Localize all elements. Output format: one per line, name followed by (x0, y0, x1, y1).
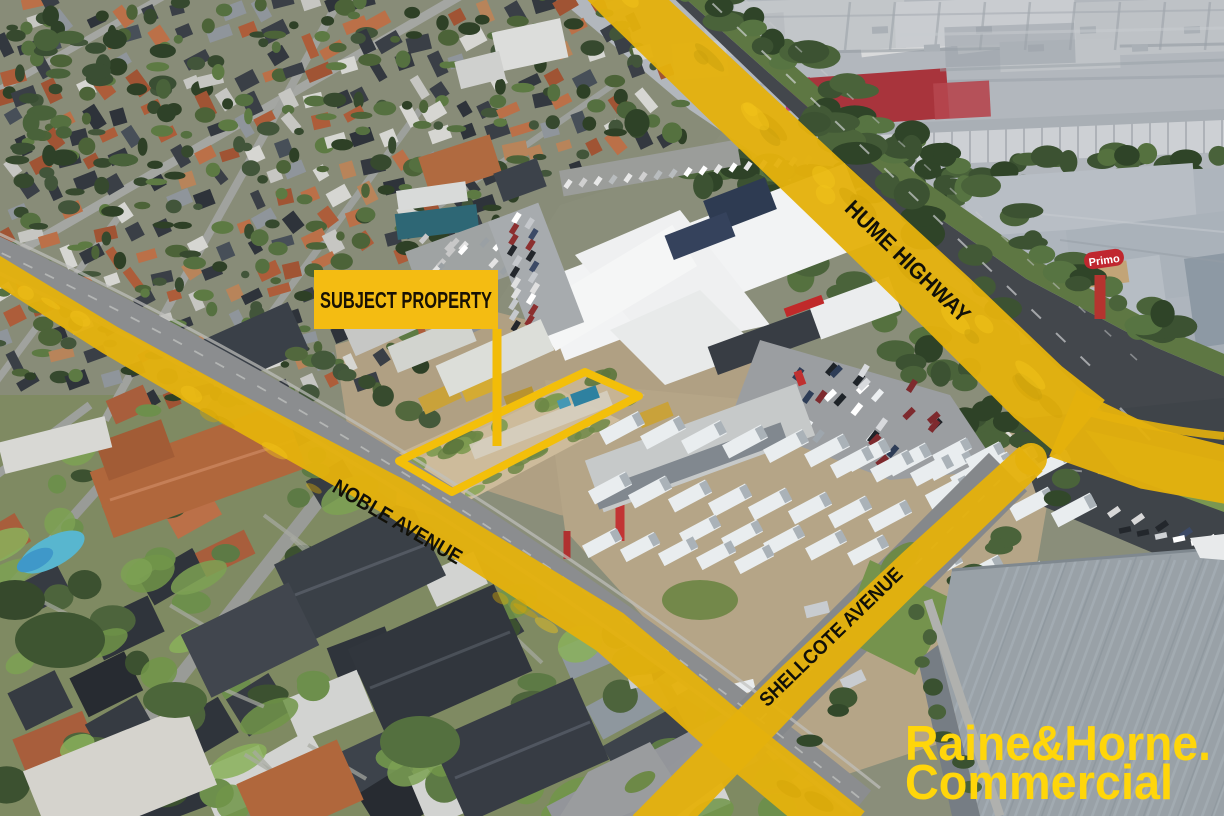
svg-text:Commercial: Commercial (905, 756, 1173, 810)
svg-text:SUBJECT PROPERTY: SUBJECT PROPERTY (320, 287, 492, 313)
